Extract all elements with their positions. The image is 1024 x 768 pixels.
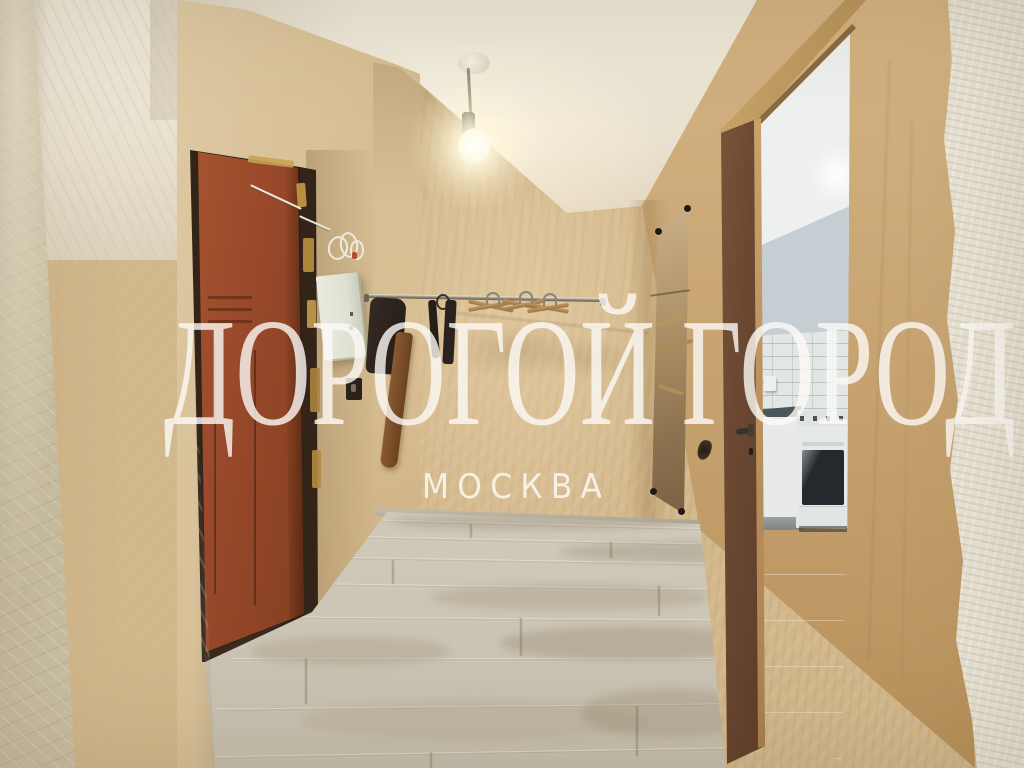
plank-seam — [210, 748, 725, 759]
kitchen-floor — [752, 528, 852, 764]
wire-end-cap — [352, 252, 357, 259]
mirror-clip — [655, 228, 662, 235]
plank-joint — [305, 658, 307, 704]
plank-joint — [520, 618, 522, 656]
light-bulb — [458, 128, 490, 166]
plank-grain — [250, 636, 450, 666]
plank-joint — [392, 560, 394, 584]
stove-drawer — [799, 506, 847, 527]
plank-joint — [636, 706, 638, 756]
mirror-clip — [684, 205, 691, 212]
mounting-foam — [303, 238, 314, 272]
plank-seam — [260, 616, 725, 621]
plank-joint — [470, 524, 472, 538]
mounting-foam — [296, 183, 307, 208]
plank-joint — [430, 752, 432, 768]
watermark-title: ДОРОГОЙ ГОРОД — [164, 296, 860, 450]
plank-grain — [430, 584, 710, 610]
plank-joint — [610, 542, 612, 558]
watermark-subtitle: МОСКВА — [41, 470, 983, 504]
hallway-photo: ДОРОГОЙ ГОРОД МОСКВА — [0, 0, 1024, 768]
lamp-canopy — [458, 52, 490, 74]
plank-joint — [658, 586, 660, 616]
mirror-clip — [678, 508, 685, 515]
